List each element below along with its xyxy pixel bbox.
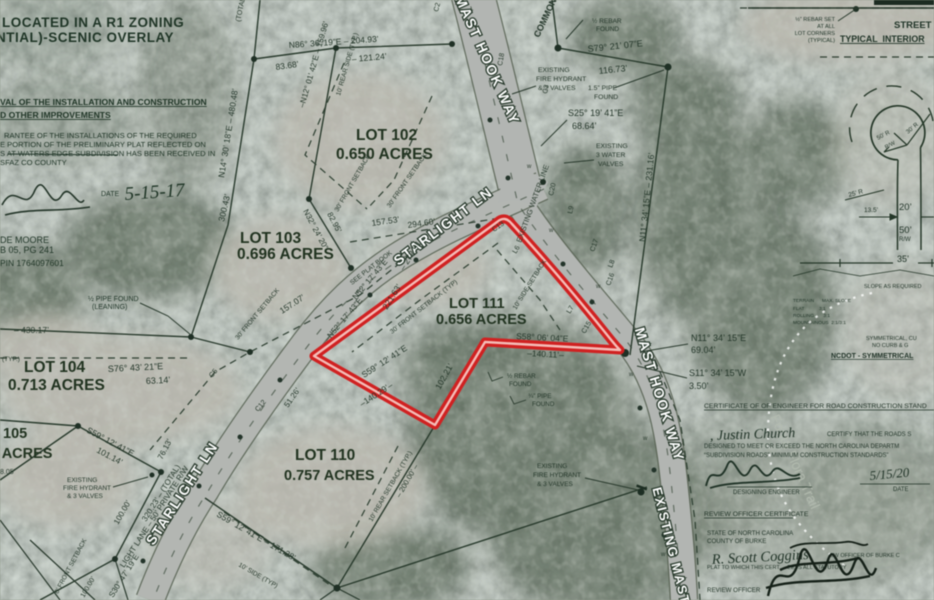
svg-text:SFAZ CO COUNTY: SFAZ CO COUNTY bbox=[0, 158, 67, 167]
svg-text:REVIEW OFFICER CERTIFICATE: REVIEW OFFICER CERTIFICATE bbox=[704, 511, 809, 518]
svg-text:STREET: STREET bbox=[894, 20, 932, 31]
svg-text:0.757 ACRES: 0.757 ACRES bbox=[284, 468, 375, 484]
svg-text:w: w bbox=[642, 436, 648, 442]
svg-text:E PORTION OF THE PRELIMINARY P: E PORTION OF THE PRELIMINARY PLAT REFLEC… bbox=[0, 140, 206, 149]
svg-text:NCDOT - SYMMETRICAL: NCDOT - SYMMETRICAL bbox=[831, 353, 914, 360]
svg-text:(LEANING): (LEANING) bbox=[92, 304, 127, 311]
svg-text:FIRE HYDRANT: FIRE HYDRANT bbox=[533, 472, 581, 479]
svg-text:TERRAIN MAX. SLOPE: TERRAIN MAX. SLOPE bbox=[793, 298, 851, 304]
svg-text:35’: 35’ bbox=[897, 254, 909, 264]
svg-text:(TYPICAL): (TYPICAL) bbox=[808, 38, 835, 44]
svg-text:SLOPE AS REQUIRED: SLOPE AS REQUIRED bbox=[864, 284, 921, 290]
svg-text:– 430.17’: – 430.17’ bbox=[14, 325, 49, 335]
svg-text:MOUNTAINOUS 2:1/3:1: MOUNTAINOUS 2:1/3:1 bbox=[793, 320, 846, 326]
svg-text:(TYP.): (TYP.) bbox=[2, 356, 20, 363]
svg-text:EXISTING: EXISTING bbox=[596, 143, 628, 150]
svg-text:1.5” PIPE: 1.5” PIPE bbox=[588, 85, 618, 92]
svg-text:NO CURB & G: NO CURB & G bbox=[872, 343, 908, 349]
svg-text:FIRE HYDRANT: FIRE HYDRANT bbox=[63, 485, 111, 492]
svg-text:FLAT 3:1: FLAT 3:1 bbox=[793, 306, 826, 312]
svg-text:B 05, PG 241: B 05, PG 241 bbox=[0, 245, 54, 255]
svg-text:LOCATED IN A R1 ZONING: LOCATED IN A R1 ZONING bbox=[2, 15, 184, 30]
svg-text:0.656 ACRES: 0.656 ACRES bbox=[436, 312, 527, 328]
svg-text:PIN 1764097601: PIN 1764097601 bbox=[0, 258, 64, 268]
svg-text:FOUND: FOUND bbox=[532, 401, 555, 408]
svg-text:0.696 ACRES: 0.696 ACRES bbox=[237, 246, 334, 263]
svg-text:5-15-17: 5-15-17 bbox=[124, 180, 187, 205]
svg-text:½ REBAR: ½ REBAR bbox=[507, 372, 536, 380]
svg-text:VAL OF THE INSTALLATION AND CO: VAL OF THE INSTALLATION AND CONSTRUCTION bbox=[0, 97, 207, 107]
svg-text:EW OFFICER OF BURKE C: EW OFFICER OF BURKE C bbox=[830, 553, 900, 559]
svg-text:0.68 ACRES: 0.68 ACRES bbox=[0, 446, 53, 462]
svg-text:w: w bbox=[548, 228, 554, 234]
svg-text:LOT 103: LOT 103 bbox=[240, 230, 302, 247]
svg-text:SYMMETRICAL, CU: SYMMETRICAL, CU bbox=[866, 336, 917, 342]
svg-text:COUNTY OF BURKE: COUNTY OF BURKE bbox=[707, 538, 766, 545]
svg-text:RANTEE OF THE INSTALLATIONS OF: RANTEE OF THE INSTALLATIONS OF THE REQUI… bbox=[4, 131, 197, 140]
svg-text:EXISTING: EXISTING bbox=[538, 67, 570, 74]
svg-text:DESIGNING ENGINEER: DESIGNING ENGINEER bbox=[733, 490, 800, 496]
svg-text:13.5’: 13.5’ bbox=[864, 207, 879, 214]
svg-text:NTIAL)-SCENIC OVERLAY: NTIAL)-SCENIC OVERLAY bbox=[0, 30, 174, 45]
svg-text:DE MOORE: DE MOORE bbox=[0, 235, 49, 245]
svg-text:w: w bbox=[628, 372, 634, 378]
svg-text:LOT 110: LOT 110 bbox=[295, 447, 355, 464]
svg-text:D OTHER IMPROVEMENTS: D OTHER IMPROVEMENTS bbox=[0, 110, 111, 120]
svg-text:& 3 VALVES: & 3 VALVES bbox=[537, 481, 574, 488]
svg-text:FOUND: FOUND bbox=[596, 26, 619, 33]
svg-text:TYPICAL INTERIOR: TYPICAL INTERIOR bbox=[840, 34, 925, 44]
svg-text:CERTIFICATE OF OF ENGINEER FOR: CERTIFICATE OF OF ENGINEER FOR ROAD CONS… bbox=[704, 403, 927, 410]
svg-text:N11° 34’ 15”E: N11° 34’ 15”E bbox=[691, 333, 746, 343]
svg-text:LOT CORNERS: LOT CORNERS bbox=[795, 31, 836, 37]
svg-text:DATE: DATE bbox=[101, 191, 119, 198]
svg-text:EXISTING: EXISTING bbox=[67, 477, 97, 484]
svg-text:w: w bbox=[526, 164, 532, 170]
svg-text:20’: 20’ bbox=[899, 202, 912, 213]
svg-text:50’: 50’ bbox=[899, 225, 912, 236]
svg-text:LOT 104: LOT 104 bbox=[24, 359, 86, 376]
svg-text:LOT 111: LOT 111 bbox=[449, 296, 505, 312]
svg-text:VALVES: VALVES bbox=[598, 161, 624, 168]
svg-text:S AT WATERS EDGE SUBDIVISION H: S AT WATERS EDGE SUBDIVISION HAS BEEN RE… bbox=[0, 149, 215, 158]
svg-text:DATE: DATE bbox=[893, 487, 909, 493]
svg-text:DESIGNED TO MEET OR EXCEED THE: DESIGNED TO MEET OR EXCEED THE NORTH CAR… bbox=[704, 444, 899, 450]
svg-text:CERTIFY THAT THE ROADS S: CERTIFY THAT THE ROADS S bbox=[827, 432, 911, 438]
svg-text:AT ALL: AT ALL bbox=[817, 24, 835, 30]
svg-text:FOUND: FOUND bbox=[509, 381, 532, 388]
svg-text:¾” PIPE: ¾” PIPE bbox=[528, 393, 551, 400]
svg-text:½ REBAR: ½ REBAR bbox=[592, 17, 622, 25]
svg-text:S25° 19’ 41”E: S25° 19’ 41”E bbox=[568, 108, 623, 118]
svg-text:63.14’: 63.14’ bbox=[146, 375, 171, 386]
svg-text:STATE OF NORTH CAROLINA: STATE OF NORTH CAROLINA bbox=[707, 530, 794, 537]
svg-text:LOT 102: LOT 102 bbox=[356, 127, 417, 144]
svg-text:0.713 ACRES: 0.713 ACRES bbox=[8, 377, 105, 394]
svg-text:& 2 VALVES: & 2 VALVES bbox=[538, 85, 576, 92]
svg-text:3 WATER: 3 WATER bbox=[596, 152, 626, 159]
svg-text:“SUBDIVISION ROADS” MINIMUM CO: “SUBDIVISION ROADS” MINIMUM CONSTRUCTION… bbox=[704, 453, 889, 459]
svg-text:½ PIPE FOUND: ½ PIPE FOUND bbox=[88, 295, 139, 303]
svg-text:FOUND: FOUND bbox=[594, 94, 618, 101]
svg-text:–140.11’–: –140.11’– bbox=[527, 348, 564, 360]
svg-text:S11° 34’ 15”W: S11° 34’ 15”W bbox=[689, 368, 747, 378]
svg-text:½” REBAR SET: ½” REBAR SET bbox=[795, 16, 835, 23]
svg-text:FIRE HYDRANT: FIRE HYDRANT bbox=[536, 76, 586, 83]
svg-text:w: w bbox=[660, 552, 666, 558]
svg-text:w: w bbox=[595, 284, 601, 290]
svg-text:68.64’: 68.64’ bbox=[572, 121, 597, 131]
svg-text:, Justin Church: , Justin Church bbox=[710, 426, 796, 444]
svg-text:3.50’: 3.50’ bbox=[689, 381, 709, 391]
svg-text:LOT 105: LOT 105 bbox=[0, 426, 27, 442]
svg-text:ROLLING 3:1: ROLLING 3:1 bbox=[793, 313, 830, 319]
svg-text:8.05’: 8.05’ bbox=[0, 469, 16, 476]
svg-text:EXISTING: EXISTING bbox=[537, 463, 567, 470]
svg-text:& 3 VALVES: & 3 VALVES bbox=[67, 493, 104, 500]
svg-text:R/W: R/W bbox=[899, 237, 911, 243]
svg-text:69.04’: 69.04’ bbox=[691, 345, 716, 355]
svg-text:REVIEW OFFICER: REVIEW OFFICER bbox=[707, 587, 761, 594]
